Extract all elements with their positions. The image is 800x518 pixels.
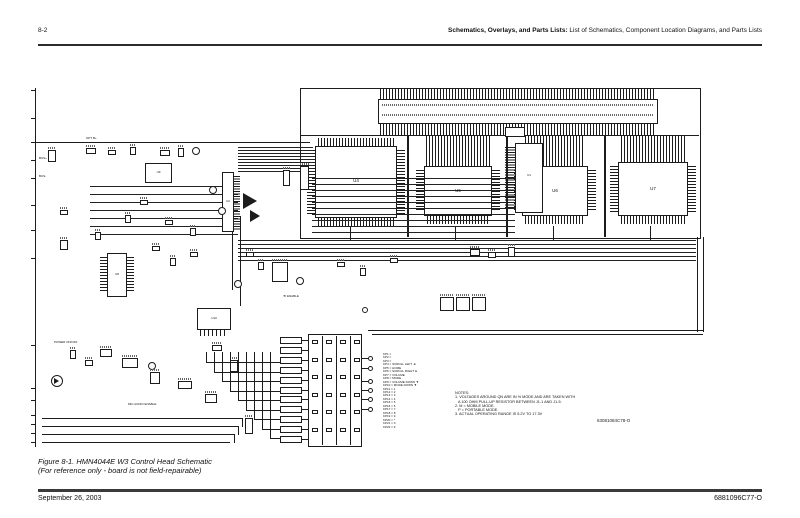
keypad-feed-v xyxy=(270,352,271,438)
refdes-text xyxy=(60,237,68,239)
refdes-text xyxy=(108,147,116,149)
wire xyxy=(42,418,242,419)
small-ic xyxy=(505,127,525,137)
keypad-resistor xyxy=(280,377,302,384)
component-box xyxy=(48,150,56,162)
transistor-symbol xyxy=(362,307,368,313)
component-box xyxy=(258,262,264,270)
keypad-resistor xyxy=(280,347,302,354)
lcd-connector-pins-top xyxy=(380,88,656,99)
connector-pin xyxy=(31,433,36,434)
refdes-text xyxy=(508,244,515,246)
key-switch xyxy=(340,375,346,379)
label-opt-b-plus: OPT B+ xyxy=(86,137,97,140)
speaker-cone xyxy=(54,378,59,384)
matrix-divider xyxy=(336,336,337,445)
refdes-text xyxy=(122,355,138,357)
connector-pin xyxy=(31,205,36,206)
component-box xyxy=(122,358,138,368)
refdes-text xyxy=(470,246,480,248)
keypad-resistor xyxy=(280,387,302,394)
diode-symbol xyxy=(368,379,373,384)
bus-left-fan xyxy=(90,186,238,236)
transistor-symbol xyxy=(192,147,200,155)
refdes-text xyxy=(152,243,160,245)
refdes-text xyxy=(70,347,76,349)
refdes-text xyxy=(205,391,217,393)
refdes-text xyxy=(160,147,170,149)
refdes-text xyxy=(130,144,136,146)
connector-pin xyxy=(31,424,36,425)
keypad-feed-v xyxy=(230,352,231,391)
component-box xyxy=(86,148,96,154)
wire-drop xyxy=(650,226,651,240)
label-power-on-off: POWER ON/OFF xyxy=(54,341,78,344)
keypad-feed-v xyxy=(206,352,207,362)
refdes-text xyxy=(95,229,101,231)
key-switch xyxy=(354,393,360,397)
refdes-text xyxy=(283,167,290,169)
footer-rule xyxy=(38,489,762,492)
matrix-divider xyxy=(322,336,323,445)
wire-vert-b xyxy=(232,230,233,290)
refdes-text xyxy=(258,259,264,261)
label-bus-minus: BUS- xyxy=(39,175,46,178)
keypad-feed-h xyxy=(254,419,280,420)
refdes-text xyxy=(150,369,160,371)
component-box xyxy=(152,246,160,251)
component-box xyxy=(178,381,192,389)
refdes-text xyxy=(178,378,192,380)
notes-block: NOTES:1. VOLTAGES AROUND QN ARE IN % MOD… xyxy=(455,391,575,417)
lcd-connector xyxy=(378,99,658,124)
connector-pin xyxy=(31,442,36,443)
ic-label-u5: U5 xyxy=(424,188,492,193)
key-switch xyxy=(326,358,332,362)
refdes-text xyxy=(472,294,486,296)
key-switch xyxy=(326,340,332,344)
wire xyxy=(362,409,368,410)
component-box xyxy=(283,170,290,186)
component-box xyxy=(440,297,454,311)
component-box xyxy=(108,150,116,155)
ic-u8-pins-right xyxy=(127,257,134,293)
refdes-text xyxy=(100,346,112,348)
key-switch xyxy=(326,375,332,379)
ic-u7-pins-right xyxy=(688,166,696,212)
ic-u1-pins-left xyxy=(505,147,515,209)
component-box xyxy=(160,150,170,156)
refdes-text xyxy=(440,294,454,296)
keypad-legend: KP1 = KP2 = KP3 = KP4 = SCROLL LEFT ◄KP5… xyxy=(383,353,419,429)
wire xyxy=(362,368,368,369)
keypad-legend-line: KP22 = # xyxy=(383,426,419,429)
component-box xyxy=(178,148,184,157)
key-switch xyxy=(354,428,360,432)
diode-symbol xyxy=(368,388,373,393)
transistor-symbol xyxy=(296,277,304,285)
wire xyxy=(362,358,368,359)
label-bus-plus: BUS+ xyxy=(39,157,47,160)
keypad-resistor xyxy=(280,337,302,344)
note-line: 3. ACTUAL OPERATING RANGE IS 5.2V TO 17.… xyxy=(455,412,575,416)
component-box xyxy=(60,240,68,250)
component-box xyxy=(190,228,196,236)
key-switch xyxy=(312,358,318,362)
keypad-feed-h xyxy=(246,410,280,411)
keypad-feed-h xyxy=(270,438,280,439)
keypad-feed-h xyxy=(262,429,280,430)
ic-u7-pins-left xyxy=(610,166,618,212)
refdes-text xyxy=(165,217,173,219)
refdes-text xyxy=(382,104,654,106)
component-box xyxy=(488,252,496,258)
refdes-text xyxy=(360,265,366,267)
ic-u6-pins-bottom xyxy=(525,216,585,224)
component-box xyxy=(212,345,222,351)
component-box xyxy=(60,210,68,215)
bus-below-ics xyxy=(238,240,696,264)
connector-pin xyxy=(31,415,36,416)
key-switch xyxy=(326,428,332,432)
key-switch xyxy=(340,340,346,344)
figure-caption-line1: Figure 8-1. HMN4044E W3 Control Head Sch… xyxy=(38,457,212,466)
component-box xyxy=(205,394,217,403)
bus-center xyxy=(312,178,515,234)
component-box xyxy=(456,297,470,311)
component-box xyxy=(337,262,345,267)
footer-date: September 26, 2003 xyxy=(38,495,101,502)
drawing-number: 63081084C78-O xyxy=(597,418,630,423)
wire-right-1 xyxy=(697,237,698,332)
component-box xyxy=(130,147,136,155)
component-box xyxy=(245,418,253,434)
refdes-text xyxy=(230,357,238,359)
component-box xyxy=(125,215,131,223)
key-switch xyxy=(312,410,318,414)
keypad-resistor xyxy=(280,406,302,413)
keypad-resistor xyxy=(280,367,302,374)
transistor-symbol xyxy=(209,186,217,194)
keypad-feed-v xyxy=(262,352,263,429)
keypad-resistor xyxy=(280,426,302,433)
diode-symbol xyxy=(368,366,373,371)
component-box xyxy=(360,268,366,276)
wire-cross-2 xyxy=(372,334,703,335)
refdes-text xyxy=(85,357,93,359)
diode-symbol xyxy=(368,407,373,412)
figure-caption: Figure 8-1. HMN4044E W3 Control Head Sch… xyxy=(38,457,212,475)
wire-vert-a xyxy=(240,216,241,306)
key-switch xyxy=(326,410,332,414)
keypad-resistor xyxy=(280,416,302,423)
ic-u7-pins-top xyxy=(621,135,685,162)
refdes-text xyxy=(190,249,198,251)
keypad-feed-v xyxy=(246,352,247,410)
refdes-text xyxy=(272,259,288,261)
component-box xyxy=(170,258,176,266)
refdes-text xyxy=(178,145,184,147)
ic-label-u7: U7 xyxy=(618,186,688,191)
opamp-symbol-2 xyxy=(250,210,260,222)
matrix-divider xyxy=(350,336,351,445)
refdes-text xyxy=(337,259,345,261)
keypad-resistor xyxy=(280,396,302,403)
schematic-canvas xyxy=(0,0,800,518)
ic-label-u10: U10 xyxy=(198,317,230,320)
ic-u5-pins-top xyxy=(426,135,490,166)
wire xyxy=(42,434,234,435)
key-switch xyxy=(354,410,360,414)
refdes-text xyxy=(382,114,654,116)
key-switch xyxy=(340,410,346,414)
wire xyxy=(42,426,238,427)
refdes-text xyxy=(488,249,496,251)
component-box xyxy=(300,166,309,190)
key-switch xyxy=(354,340,360,344)
connector-pin xyxy=(31,258,36,259)
refdes-text xyxy=(456,294,470,296)
component-box xyxy=(95,232,101,240)
key-switch xyxy=(312,340,318,344)
keypad-feed-v xyxy=(254,352,255,419)
wire xyxy=(362,381,368,382)
component-box xyxy=(508,247,515,257)
diode-symbol xyxy=(368,397,373,402)
component-box xyxy=(70,350,76,359)
section-divider xyxy=(604,135,606,237)
note-line: 1. VOLTAGES AROUND QN ARE IN % MODE AND … xyxy=(455,395,575,399)
component-box xyxy=(390,258,398,263)
transistor-symbol xyxy=(234,280,242,288)
diode-symbol xyxy=(368,356,373,361)
keypad-resistor xyxy=(280,357,302,364)
ic-label-u2: U2 xyxy=(223,200,233,203)
refdes-text xyxy=(300,163,309,165)
ic-label-u6: U6 xyxy=(522,188,588,193)
ic-u1 xyxy=(515,143,543,213)
connector-pin xyxy=(31,160,36,161)
connector-pin xyxy=(31,400,36,401)
footer-doc-number: 6881096C77-O xyxy=(714,495,762,502)
refdes-text xyxy=(246,249,254,251)
key-switch xyxy=(312,393,318,397)
ic-u7-pins-bottom xyxy=(621,216,685,224)
wire xyxy=(242,418,243,427)
label-b-enable: 'B' ENABLE xyxy=(283,295,299,298)
key-switch xyxy=(354,358,360,362)
refdes-text xyxy=(245,415,253,417)
component-box xyxy=(470,249,480,256)
key-switch xyxy=(340,358,346,362)
wire-right-2 xyxy=(703,237,704,332)
ic-label-u1: U1 xyxy=(516,174,542,177)
key-switch xyxy=(326,393,332,397)
refdes-text xyxy=(140,197,148,199)
label-mic-audio-enable: MIC AUDIO ENABLE xyxy=(128,403,156,406)
wire-drop xyxy=(455,226,456,240)
component-box xyxy=(190,252,198,257)
opamp-symbol xyxy=(243,193,257,209)
connector-pin xyxy=(31,118,36,119)
ic-u6-pins-right xyxy=(588,170,596,212)
keypad-feed-v xyxy=(222,352,223,381)
keypad-feed-h xyxy=(238,400,280,401)
ic-label-u9: U9 xyxy=(146,171,171,174)
manual-page: { "header": { "page_number": "8-2", "tit… xyxy=(0,0,800,518)
key-switch xyxy=(312,375,318,379)
wire-drop xyxy=(350,226,351,240)
component-box xyxy=(246,252,254,257)
connector-pin xyxy=(31,345,36,346)
connector-pin xyxy=(31,178,36,179)
component-box xyxy=(150,372,160,384)
refdes-text xyxy=(212,342,222,344)
refdes-text xyxy=(170,255,176,257)
wire xyxy=(362,399,368,400)
component-box xyxy=(272,262,288,282)
ic-u2-pins-right xyxy=(234,176,240,230)
component-box xyxy=(472,297,486,311)
transistor-symbol xyxy=(218,207,226,215)
refdes-text xyxy=(60,207,68,209)
wire xyxy=(234,434,235,443)
component-box xyxy=(100,349,112,357)
ic-label-u8: U8 xyxy=(109,273,125,276)
component-box xyxy=(140,200,148,205)
ic-u4-pins-top xyxy=(318,138,394,146)
keypad-feed-v xyxy=(214,352,215,372)
wire xyxy=(42,442,230,443)
component-box xyxy=(165,220,173,225)
refdes-text xyxy=(86,145,96,147)
wire-cross-1 xyxy=(368,330,703,331)
refdes-text xyxy=(190,225,196,227)
keypad-feed-v xyxy=(238,352,239,400)
key-switch xyxy=(354,375,360,379)
keypad-feed-h xyxy=(206,362,280,363)
key-switch xyxy=(340,393,346,397)
refdes-text xyxy=(48,147,56,149)
key-switch xyxy=(340,428,346,432)
refdes-text xyxy=(390,255,398,257)
wire-opt-b xyxy=(35,142,310,143)
wire xyxy=(362,390,368,391)
connector-pin xyxy=(31,388,36,389)
ic-label-u4: U4 xyxy=(315,178,397,183)
connector-pin xyxy=(31,90,36,91)
ic-u10-pins-bottom xyxy=(200,330,228,336)
component-box xyxy=(85,360,93,366)
connector-pin xyxy=(31,230,36,231)
key-switch xyxy=(312,428,318,432)
wire xyxy=(238,426,239,435)
ic-u8-pins-left xyxy=(100,257,107,293)
figure-caption-line2: (For reference only - board is not field… xyxy=(38,466,212,475)
wire-drop xyxy=(553,226,554,240)
keypad-resistor xyxy=(280,436,302,443)
refdes-text xyxy=(125,212,131,214)
